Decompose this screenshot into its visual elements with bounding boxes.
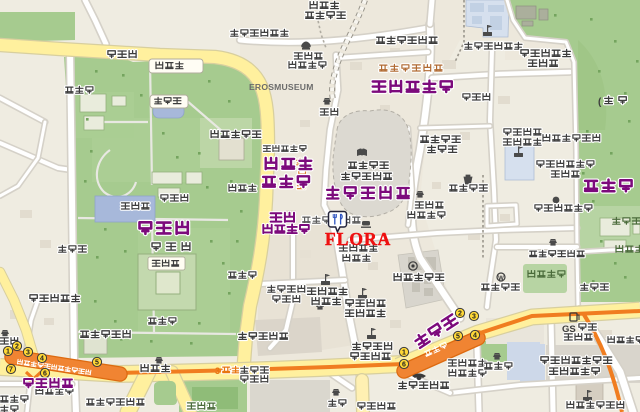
svg-text:5: 5 xyxy=(95,360,99,367)
svg-text:6: 6 xyxy=(402,362,406,369)
svg-text:4: 4 xyxy=(473,333,477,340)
svg-text:W: W xyxy=(498,276,504,282)
svg-text:7: 7 xyxy=(9,367,13,374)
svg-text:EROSMUSEUM: EROSMUSEUM xyxy=(249,82,314,92)
svg-text:3: 3 xyxy=(472,314,476,321)
svg-text:2: 2 xyxy=(15,344,19,351)
svg-text:5: 5 xyxy=(456,334,460,341)
svg-text:3: 3 xyxy=(26,350,30,357)
svg-text:1: 1 xyxy=(402,350,406,357)
svg-text:FLORA: FLORA xyxy=(325,229,391,249)
svg-text:4: 4 xyxy=(40,356,44,363)
svg-text:3: 3 xyxy=(215,366,220,376)
svg-text:1: 1 xyxy=(6,349,10,356)
svg-text:6: 6 xyxy=(43,371,47,378)
svg-text:2: 2 xyxy=(458,311,462,318)
